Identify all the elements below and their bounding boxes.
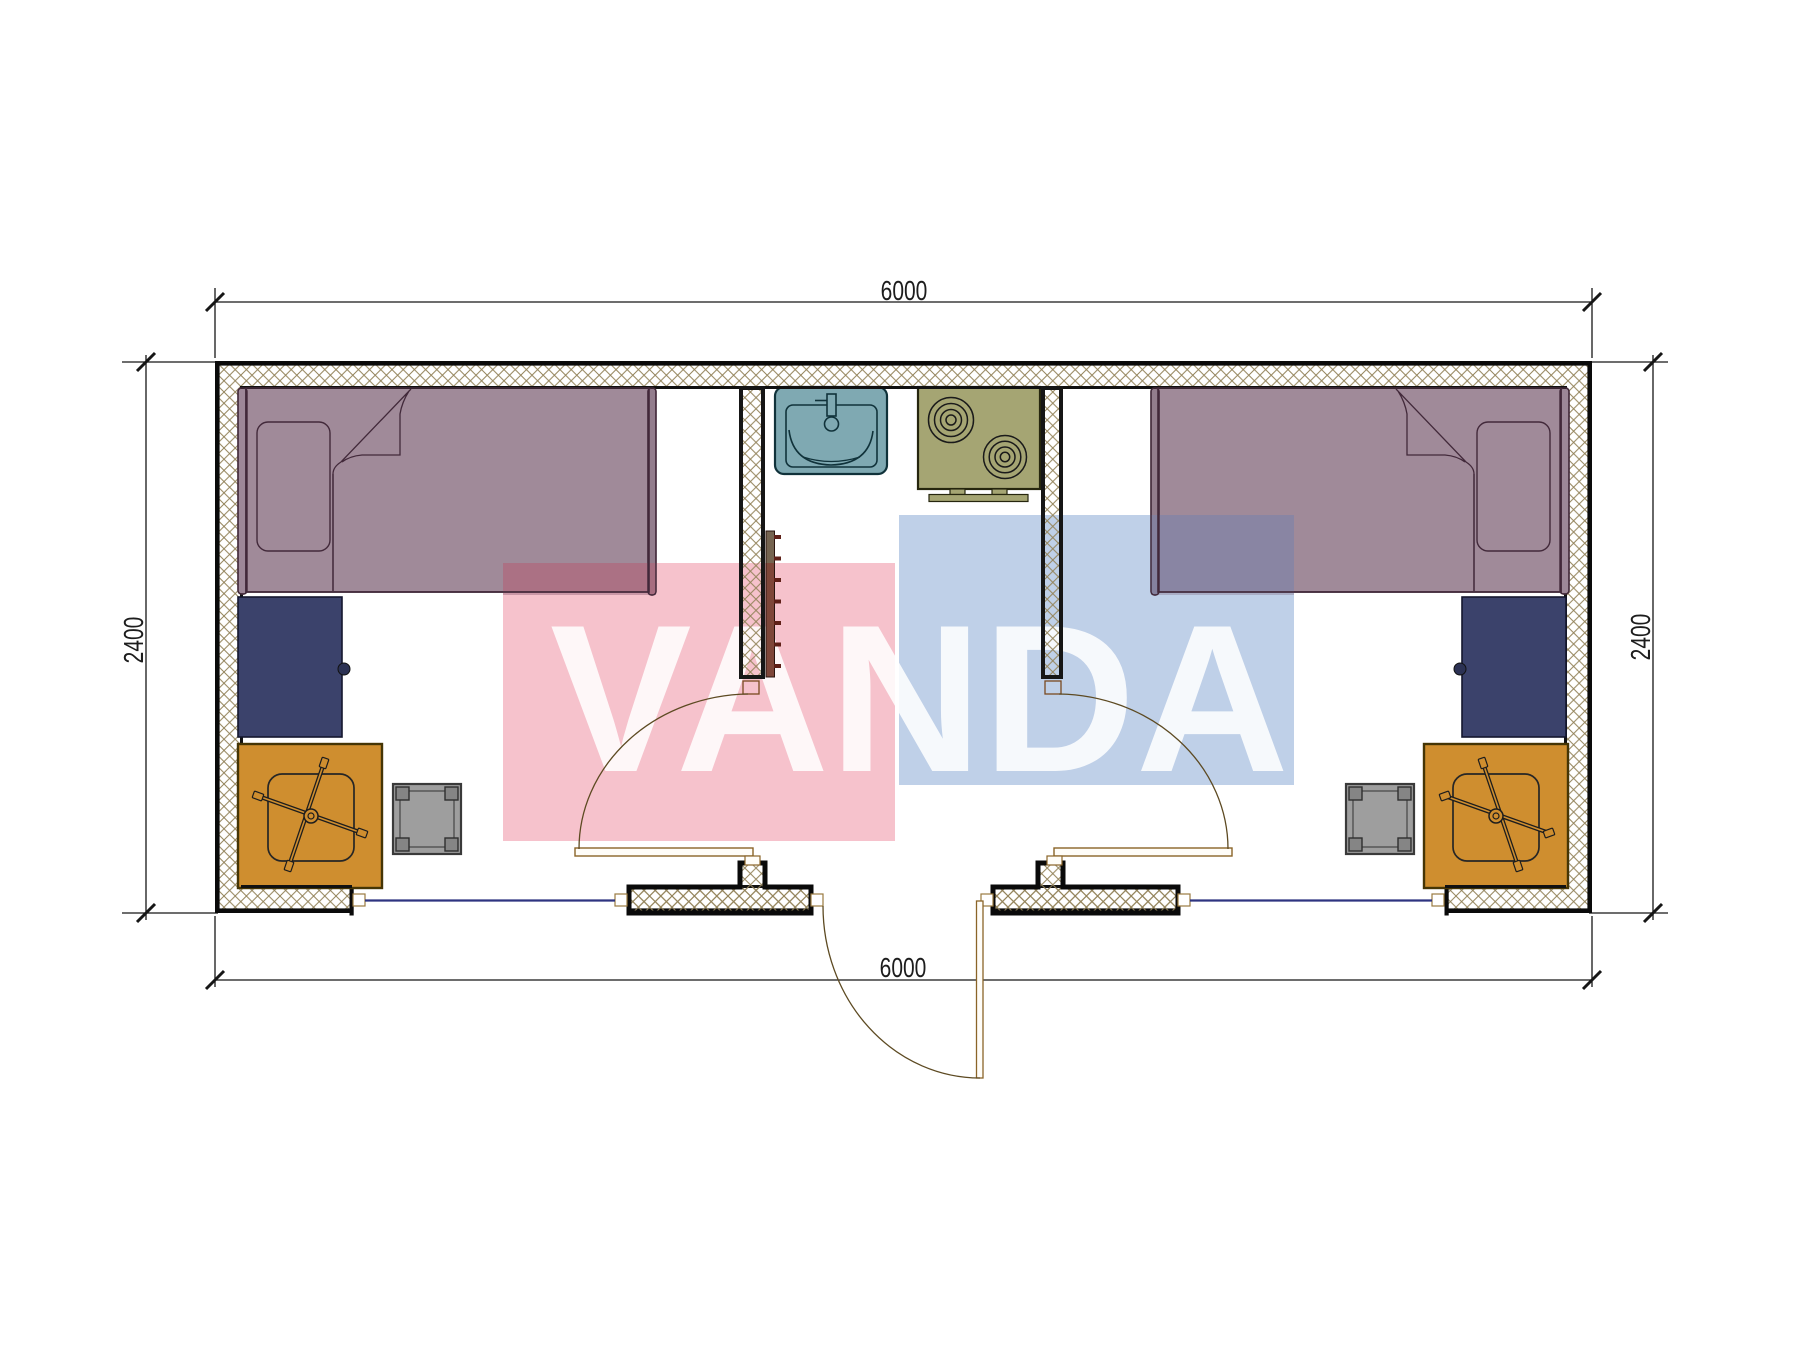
svg-text:VANDA: VANDA: [550, 581, 1289, 816]
svg-text:6000: 6000: [880, 953, 927, 984]
svg-text:2400: 2400: [119, 617, 150, 664]
svg-text:2400: 2400: [1626, 614, 1657, 661]
svg-text:6000: 6000: [881, 276, 928, 307]
